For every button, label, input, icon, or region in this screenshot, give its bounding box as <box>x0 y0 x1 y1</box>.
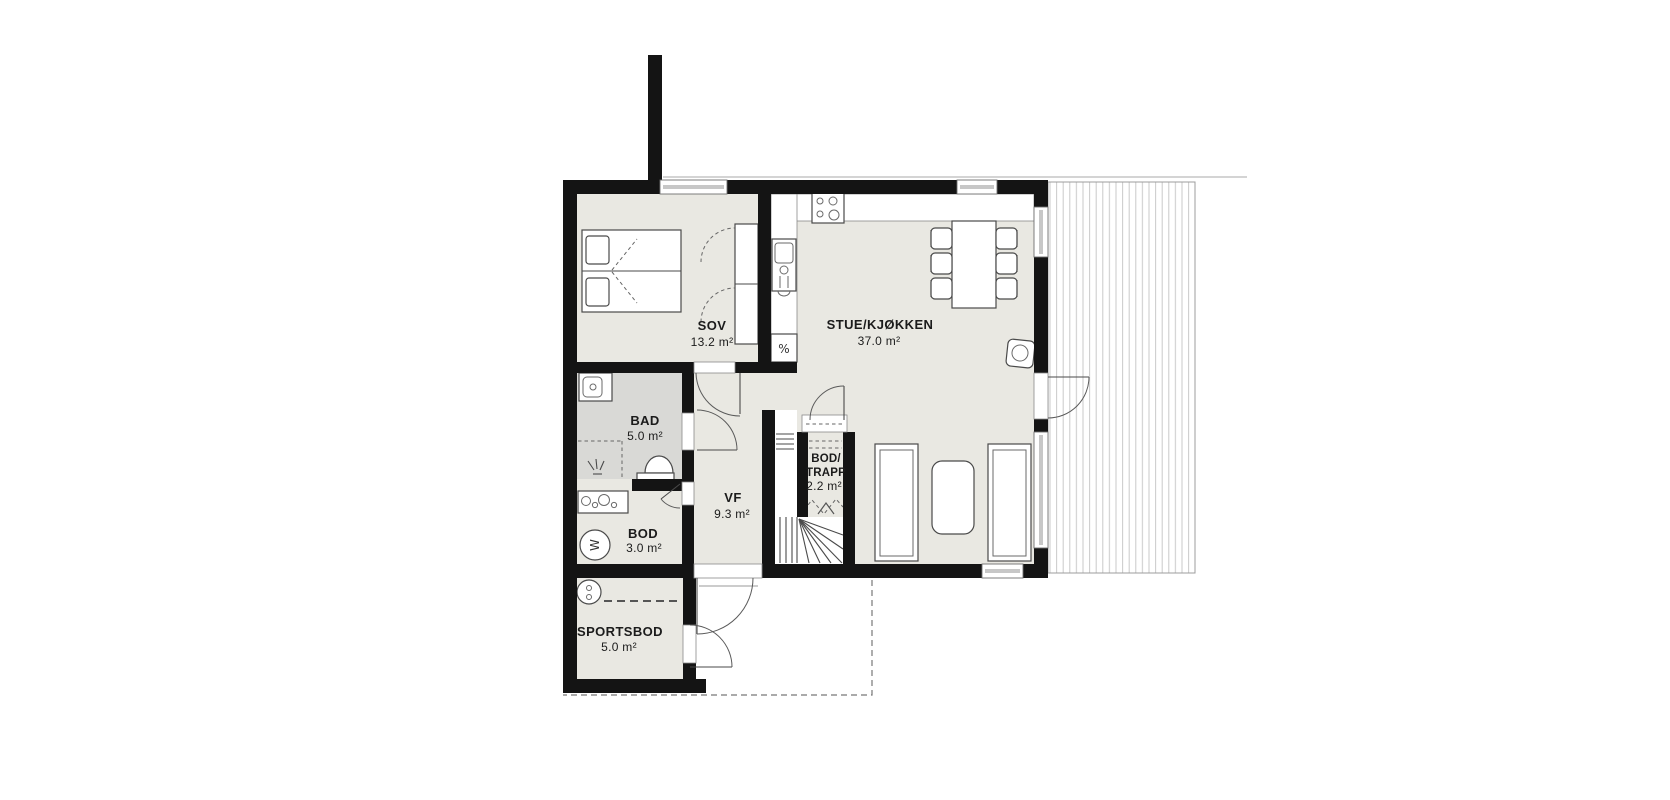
water-heater-icon <box>577 580 601 604</box>
label-bod-trapp: BOD/ TRAPP 2.2 m² <box>806 453 846 493</box>
svg-text:2.2 m²: 2.2 m² <box>806 479 842 493</box>
svg-text:13.2 m²: 13.2 m² <box>691 335 734 349</box>
floor-plan-svg: % <box>0 0 1670 800</box>
svg-text:3.0 m²: 3.0 m² <box>626 541 662 555</box>
dishwasher-icon: % <box>771 334 797 362</box>
window-sov-top <box>660 180 727 194</box>
svg-text:BOD/: BOD/ <box>811 453 841 465</box>
svg-text:TRAPP: TRAPP <box>806 467 846 479</box>
washing-machine-icon: W <box>580 530 610 560</box>
window-living-bottom <box>982 564 1023 578</box>
svg-text:5.0 m²: 5.0 m² <box>627 429 663 443</box>
floor-plan-page: % <box>0 0 1670 800</box>
window-living-top <box>957 180 997 194</box>
window-right-upper <box>1034 207 1048 257</box>
coffee-table <box>932 461 974 534</box>
dining-table-set <box>931 221 1017 308</box>
wood-stove-icon <box>1006 339 1036 369</box>
svg-text:VF: VF <box>724 490 741 505</box>
svg-text:37.0 m²: 37.0 m² <box>858 334 901 348</box>
dishwasher-symbol: % <box>778 342 789 356</box>
stove-cooktop-icon <box>812 193 844 223</box>
double-bed <box>582 230 681 312</box>
washing-machine-symbol: W <box>588 539 602 551</box>
kitchen-sink-icon <box>772 239 796 296</box>
svg-text:5.0 m²: 5.0 m² <box>601 640 637 654</box>
svg-text:STUE/KJØKKEN: STUE/KJØKKEN <box>827 317 934 332</box>
svg-text:BAD: BAD <box>630 413 659 428</box>
washbasin-icon <box>579 373 612 401</box>
label-bod: BOD 3.0 m² <box>626 526 662 555</box>
laundry-counter <box>578 491 628 513</box>
window-right-lower <box>1034 432 1048 548</box>
svg-text:9.3 m²: 9.3 m² <box>714 507 750 521</box>
svg-text:SOV: SOV <box>698 318 727 333</box>
svg-text:SPORTSBOD: SPORTSBOD <box>577 624 663 639</box>
svg-text:BOD: BOD <box>628 526 658 541</box>
